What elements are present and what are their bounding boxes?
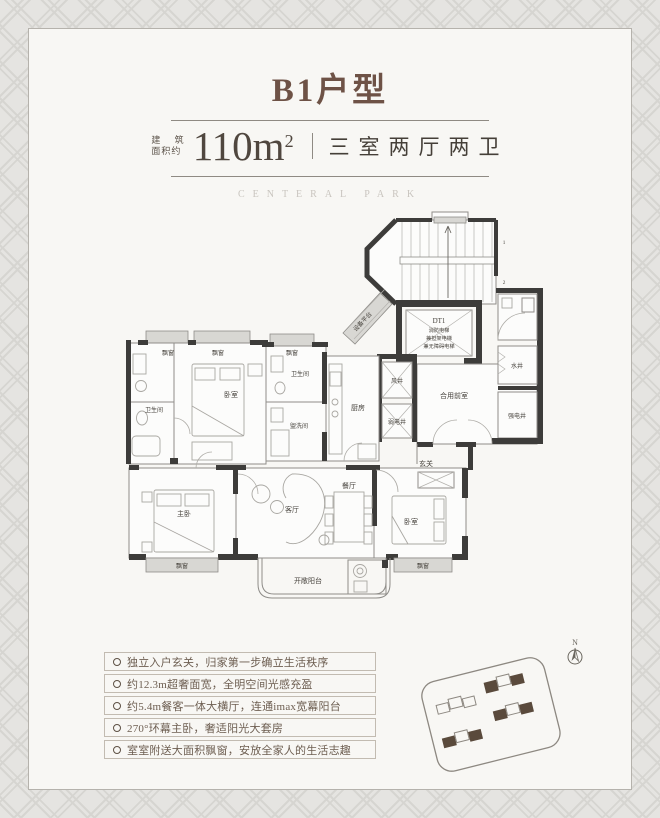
equipment-platform: 设备平台 bbox=[343, 289, 392, 344]
poster-card: B1户型 建 筑 面积约 110m2 三室两厅两卫 CENTERAL PARK … bbox=[28, 28, 632, 790]
stairwell: 1 2 bbox=[367, 212, 506, 304]
stair-mark-lower: 2 bbox=[503, 280, 506, 286]
divider-top bbox=[171, 120, 489, 121]
elevator-id: DT1 bbox=[433, 317, 446, 325]
area-prefix-line2: 面积约 bbox=[151, 146, 189, 157]
floorplan-poster: { "header": { "title": "B1户型", "area_pre… bbox=[0, 0, 660, 818]
area-number: 110m bbox=[193, 123, 285, 169]
kitchen-block: 飘窗 卫生间 盥洗间 厨房 bbox=[262, 334, 379, 461]
bay-window-5-label: 飘窗 bbox=[417, 562, 429, 570]
living-block: 主卧 客厅 餐厅 卧室 bbox=[129, 452, 468, 560]
bay-window-2-label: 飘窗 bbox=[212, 349, 224, 357]
bedroom2-block: 卫生间 飘窗 飘窗 卧室 bbox=[126, 331, 268, 464]
bullet-icon bbox=[113, 658, 121, 666]
bay-window-4-label: 飘窗 bbox=[176, 562, 188, 570]
feature-text: 约12.3m超奢面宽，全明空间光感充盈 bbox=[127, 676, 313, 692]
floorplan-drawing: 1 2 设备平台 DT1 消防电梯 兼担架电梯 兼无障碍电梯 bbox=[96, 206, 546, 616]
shaft-column: 风井 弱电井 bbox=[377, 354, 417, 442]
elevator-line1: 消防电梯 bbox=[429, 326, 450, 334]
feature-item: 270°环幕主卧，奢适阳光大套房 bbox=[104, 718, 376, 737]
bullet-icon bbox=[113, 680, 121, 688]
building-cluster-dark-1 bbox=[483, 671, 524, 693]
weak-current-shaft-label: 弱电井 bbox=[388, 418, 406, 426]
balcony: 开敞阳台 bbox=[258, 558, 390, 598]
bathroom1-label: 卫生间 bbox=[145, 406, 163, 414]
bullet-icon bbox=[113, 746, 121, 754]
foyer-label: 玄关 bbox=[419, 459, 433, 468]
page-title: B1户型 bbox=[29, 63, 631, 111]
bay-window-1-label: 飘窗 bbox=[162, 349, 174, 357]
bedroom2-label: 卧室 bbox=[224, 390, 238, 399]
feature-list: 独立入户玄关，归家第一步确立生活秩序 约12.3m超奢面宽，全明空间光感充盈 约… bbox=[104, 652, 376, 762]
building-cluster-outline bbox=[435, 693, 476, 714]
elevator-line3: 兼无障碍电梯 bbox=[423, 342, 454, 350]
bullet-icon bbox=[113, 724, 121, 732]
strong-current-shaft-label: 强电井 bbox=[508, 412, 526, 420]
site-boundary bbox=[419, 655, 564, 775]
elevator-line2: 兼担架电梯 bbox=[426, 334, 452, 342]
dining-room-label: 餐厅 bbox=[342, 481, 356, 490]
feature-item: 室室附送大面积飘窗，安放全家人的生活志趣 bbox=[104, 740, 376, 759]
water-shaft-label: 水井 bbox=[511, 362, 523, 370]
feature-item: 约5.4m餐客一体大横厅，连通imax宽幕阳台 bbox=[104, 696, 376, 715]
bedroom3-label: 卧室 bbox=[404, 517, 418, 526]
bay-window-3-label: 飘窗 bbox=[286, 349, 298, 357]
air-shaft-label: 风井 bbox=[391, 377, 403, 385]
stair-mark-upper: 1 bbox=[503, 240, 506, 246]
master-bedroom-label: 主卧 bbox=[177, 509, 191, 518]
bathroom2-label: 卫生间 bbox=[291, 370, 309, 378]
site-map: N bbox=[412, 629, 597, 787]
feature-item: 独立入户玄关，归家第一步确立生活秩序 bbox=[104, 652, 376, 671]
feature-item: 约12.3m超奢面宽，全明空间光感充盈 bbox=[104, 674, 376, 693]
building-cluster-dark-2 bbox=[493, 699, 534, 720]
washroom-label: 盥洗间 bbox=[290, 422, 308, 430]
watermark-text: CENTERAL PARK bbox=[29, 189, 631, 200]
bottom-bay-windows: 飘窗 飘窗 bbox=[146, 558, 452, 572]
north-compass-icon: N bbox=[568, 638, 582, 664]
divider-bottom bbox=[171, 176, 489, 177]
shared-vestibule-label: 合用前室 bbox=[440, 391, 468, 400]
north-label: N bbox=[572, 638, 578, 647]
building-cluster-dark-3 bbox=[442, 727, 483, 748]
area-value: 110m2 bbox=[193, 126, 294, 166]
area-row: 建 筑 面积约 110m2 三室两厅两卫 bbox=[29, 125, 631, 167]
area-exponent: 2 bbox=[285, 131, 294, 151]
feature-text: 室室附送大面积飘窗，安放全家人的生活志趣 bbox=[127, 742, 351, 758]
foyer: 玄关 bbox=[417, 444, 473, 470]
feature-text: 270°环幕主卧，奢适阳光大套房 bbox=[127, 720, 283, 736]
layout-type-label: 三室两厅两卫 bbox=[329, 131, 509, 161]
area-prefix-line1: 建 筑 bbox=[151, 135, 189, 146]
kitchen-label: 厨房 bbox=[351, 403, 365, 412]
living-room-label: 客厅 bbox=[285, 505, 299, 514]
area-prefix: 建 筑 面积约 bbox=[151, 135, 189, 157]
vertical-divider bbox=[312, 133, 313, 159]
feature-text: 独立入户玄关，归家第一步确立生活秩序 bbox=[127, 654, 329, 670]
bullet-icon bbox=[113, 702, 121, 710]
open-balcony-label: 开敞阳台 bbox=[294, 576, 322, 585]
feature-text: 约5.4m餐客一体大横厅，连通imax宽幕阳台 bbox=[127, 698, 341, 714]
